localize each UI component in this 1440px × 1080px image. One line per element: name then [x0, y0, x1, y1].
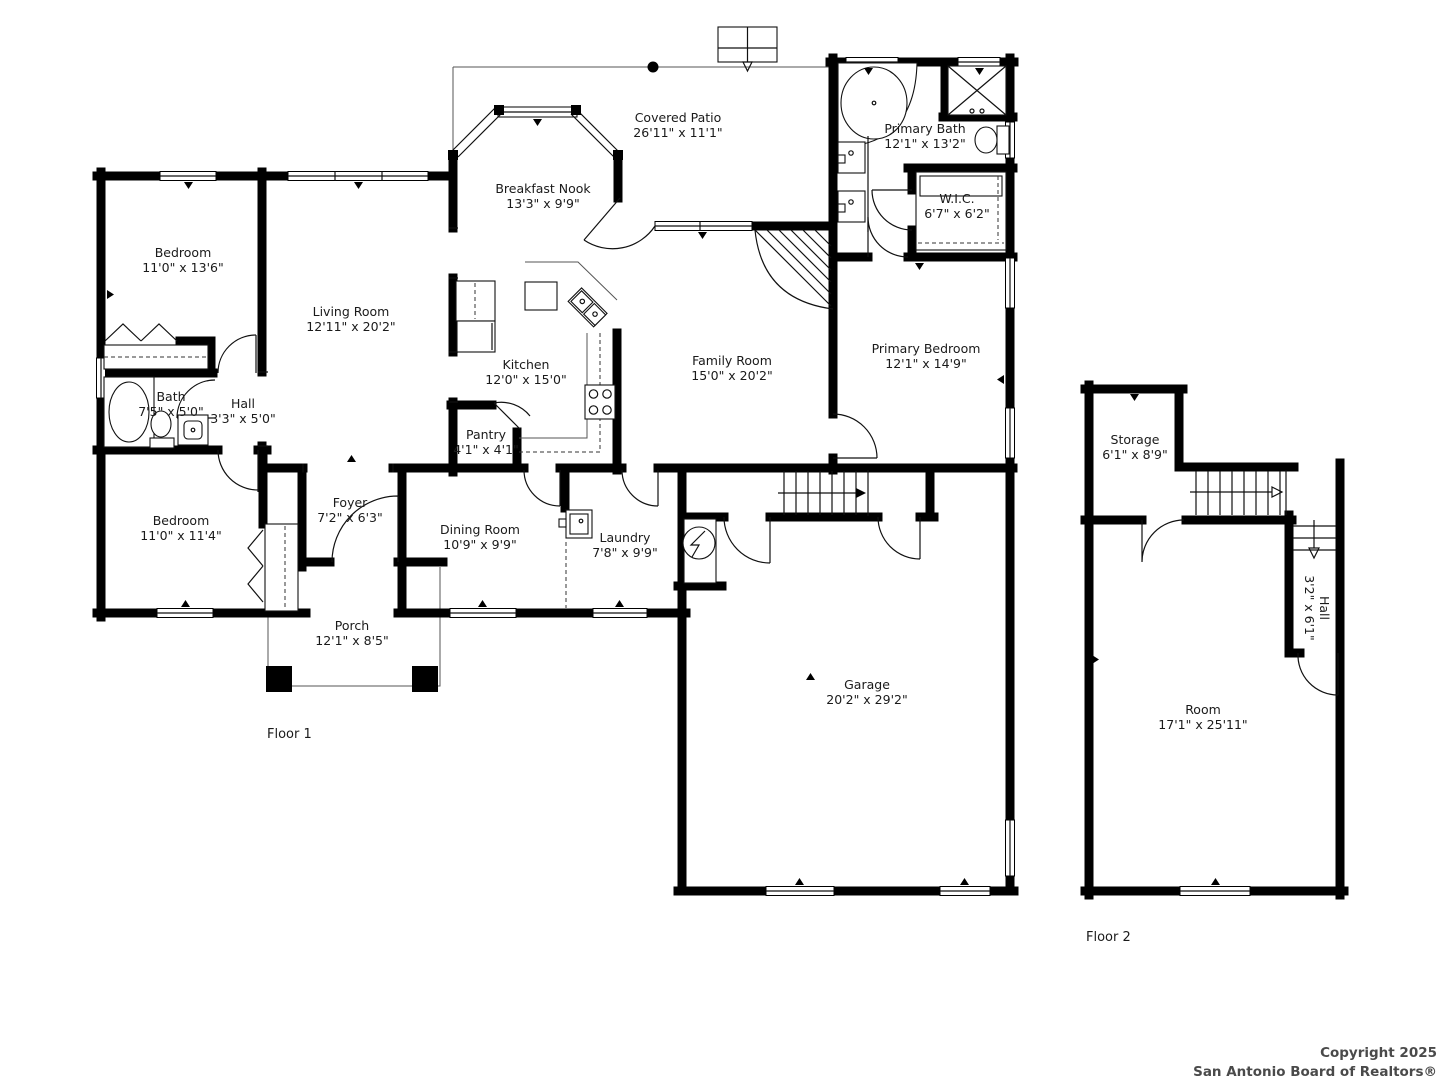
room-dims-bath: 7'5" x 5'0" — [138, 404, 204, 419]
room-dims-pantry: 4'1" x 4'1" — [453, 442, 519, 457]
door-garage-hall — [724, 517, 770, 563]
door-pantry — [494, 402, 530, 429]
floor1-plan: Covered Patio 26'11" x 11'1" Breakfast N… — [97, 27, 1015, 896]
room-dims-hall2: 3'2" x 6'1" — [1302, 575, 1317, 641]
room-label-hall2-group: Hall 3'2" x 6'1" — [1302, 575, 1332, 641]
room-dims-porch: 12'1" x 8'5" — [315, 633, 388, 648]
floor2-plan: Storage 6'1" x 8'9" Hall 3'2" x 6'1" Roo… — [1085, 385, 1344, 945]
room-dims-primary-bath: 12'1" x 13'2" — [884, 136, 965, 151]
room-label-laundry: Laundry — [600, 530, 652, 545]
copyright-line1: Copyright 2025 — [1320, 1045, 1437, 1061]
window — [940, 887, 990, 896]
cased-opening — [258, 228, 458, 473]
floorplan-svg: Covered Patio 26'11" x 11'1" Breakfast N… — [0, 0, 1440, 1080]
room-label-breakfast-nook: Breakfast Nook — [495, 181, 591, 196]
room-label-bath: Bath — [156, 389, 185, 404]
room-label-room2: Room — [1185, 702, 1221, 717]
window — [288, 172, 428, 181]
door-wic — [872, 190, 912, 230]
window — [593, 609, 647, 618]
room-dims-breakfast-nook: 13'3" x 9'9" — [506, 196, 579, 211]
floor2-label: Floor 2 — [1086, 930, 1131, 945]
stove-icon — [585, 385, 615, 419]
shower-icon — [948, 66, 1006, 115]
kitchen-sink-icon — [568, 288, 607, 327]
door-dining — [524, 470, 560, 506]
room-label-storage: Storage — [1111, 432, 1160, 447]
room-label-hall2: Hall — [1317, 596, 1332, 620]
room-label-living-room: Living Room — [313, 304, 390, 319]
room-dims-family-room: 15'0" x 20'2" — [691, 368, 772, 383]
room-label-dining-room: Dining Room — [440, 522, 520, 537]
room-label-family-room: Family Room — [692, 353, 772, 368]
window — [450, 609, 516, 618]
window — [1180, 887, 1250, 896]
room-dims-covered-patio: 26'11" x 11'1" — [633, 125, 722, 140]
room-dims-primary-bedroom: 12'1" x 14'9" — [885, 356, 966, 371]
stairs-upper — [1190, 470, 1286, 515]
stairs-hatch — [755, 230, 833, 309]
window — [1006, 258, 1015, 308]
room-label-primary-bedroom: Primary Bedroom — [872, 341, 981, 356]
room-label-porch: Porch — [335, 618, 369, 633]
bedroom1-closet — [104, 324, 208, 369]
room-label-bedroom1: Bedroom — [155, 245, 212, 260]
water-heater-icon — [683, 519, 716, 583]
kitchen-island — [525, 282, 557, 310]
window — [958, 58, 1000, 67]
window — [766, 887, 834, 896]
door-breakfast-nook — [584, 198, 655, 249]
room-label-kitchen: Kitchen — [503, 357, 550, 372]
door-bedroom1 — [218, 335, 256, 373]
room-dims-laundry: 7'8" x 9'9" — [592, 545, 658, 560]
room-label-hall1: Hall — [231, 396, 255, 411]
window — [157, 609, 213, 618]
bedroom2-closet — [248, 524, 298, 611]
room-label-primary-bath: Primary Bath — [884, 121, 965, 136]
floorplan-page: Covered Patio 26'11" x 11'1" Breakfast N… — [0, 0, 1440, 1080]
door-floor2-hall — [1298, 653, 1338, 695]
room-label-garage: Garage — [844, 677, 890, 692]
copyright-notice: Copyright 2025 San Antonio Board of Real… — [1193, 1045, 1438, 1080]
porch-post — [266, 666, 292, 692]
double-vanity-icon — [838, 136, 868, 232]
window — [1006, 820, 1015, 876]
door-garage-landing — [878, 517, 920, 559]
room-label-wic: W.I.C. — [939, 191, 974, 206]
room-label-covered-patio: Covered Patio — [635, 110, 722, 125]
room-label-bedroom2: Bedroom — [153, 513, 210, 528]
room-dims-garage: 20'2" x 29'2" — [826, 692, 907, 707]
room-dims-foyer: 7'2" x 6'3" — [317, 510, 383, 525]
room-label-foyer: Foyer — [333, 495, 368, 510]
ac-unit-icon — [718, 27, 777, 71]
room-dims-dining-room: 10'9" x 9'9" — [443, 537, 516, 552]
sink-icon — [178, 415, 208, 445]
door-bedroom2 — [218, 450, 258, 492]
patio-post-dot — [648, 62, 659, 73]
stairs-hall-down — [1293, 520, 1336, 558]
room-label-pantry: Pantry — [466, 427, 507, 442]
refrigerator-icon — [456, 281, 495, 352]
porch-post — [412, 666, 438, 692]
room-dims-bedroom2: 11'0" x 11'4" — [140, 528, 221, 543]
room-dims-kitchen: 12'0" x 15'0" — [485, 372, 566, 387]
door-primary-bath — [868, 217, 908, 257]
door-laundry — [622, 470, 658, 506]
room-dims-bedroom1: 11'0" x 13'6" — [142, 260, 223, 275]
floor1-label: Floor 1 — [267, 727, 312, 742]
toilet-icon — [975, 126, 1009, 154]
room-dims-wic: 6'7" x 6'2" — [924, 206, 990, 221]
window — [160, 172, 216, 181]
utility-sink-icon — [559, 510, 592, 538]
primary-bath-fixtures — [838, 63, 1009, 250]
copyright-line2: San Antonio Board of Realtors® — [1193, 1064, 1437, 1080]
room-dims-hall1: 3'3" x 5'0" — [210, 411, 276, 426]
window — [655, 222, 752, 231]
door-primary-bedroom — [833, 414, 877, 458]
room-dims-room2: 17'1" x 25'11" — [1158, 717, 1247, 732]
window — [1006, 408, 1015, 458]
stairs-main — [778, 470, 868, 516]
room-dims-living-room: 12'11" x 20'2" — [306, 319, 395, 334]
laundry-fixtures — [559, 510, 592, 608]
door-floor2-room-top — [1142, 520, 1184, 562]
room-dims-storage: 6'1" x 8'9" — [1102, 447, 1168, 462]
window — [498, 107, 577, 117]
